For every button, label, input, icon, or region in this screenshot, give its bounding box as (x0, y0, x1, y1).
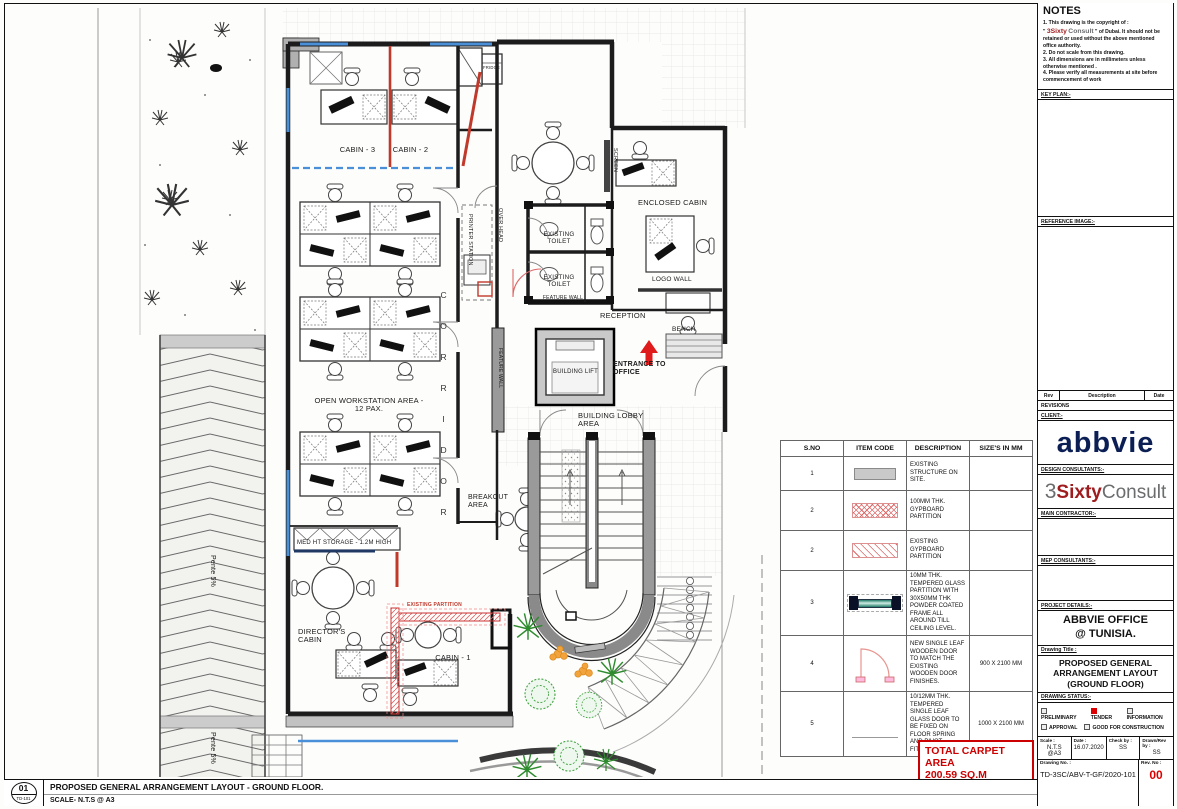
notes-body: 1. This drawing is the copyright of : " … (1038, 18, 1173, 87)
curved-walkway (470, 555, 762, 777)
main-contractor-section: MAIN CONTRACTOR:- (1038, 509, 1173, 556)
furniture (292, 54, 722, 706)
client-label: CLIENT:- (1038, 411, 1173, 421)
project-name-line2: @ TUNISIA. (1038, 628, 1173, 642)
drawing-title-section: Drawing Title : PROPOSED GENERAL ARRANGE… (1038, 646, 1173, 693)
checkbox-icon (1041, 724, 1047, 730)
legend-row: 3 10MM THK. TEMPERED GLASS PARTITION WIT… (781, 571, 1033, 636)
status-tender: TENDER (1091, 708, 1120, 721)
scale-field: Scale :N.T.S @A3 (1038, 737, 1072, 759)
project-details-label: PROJECT DETAILS:- (1038, 601, 1173, 611)
main-staircase (528, 432, 655, 661)
sheet-fields-row: Scale :N.T.S @A3 Date :16.07.2020 Check … (1038, 737, 1173, 760)
mep-consultants-section: MEP CONSULTANTS:- (1038, 556, 1173, 601)
sheet-scale: SCALE- N.T.S @ A3 (44, 795, 1037, 806)
sheet-footer-bar: 01 TD-101 PROPOSED GENERAL ARRANGEMENT L… (4, 779, 1037, 806)
project-details-section: PROJECT DETAILS:- ABBVIE OFFICE @ TUNISI… (1038, 601, 1173, 646)
existing-gypboard-hatch-swatch (852, 543, 898, 558)
project-name-line1: ABBVIE OFFICE (1038, 614, 1173, 628)
mep-consultants-label: MEP CONSULTANTS:- (1038, 556, 1173, 566)
checkbox-icon (1084, 724, 1090, 730)
drawing-title-label: Drawing Title : (1038, 646, 1173, 656)
client-section: CLIENT:- abbvie (1038, 411, 1173, 465)
revisions-header-row: Rev Description Date (1038, 391, 1173, 401)
status-preliminary: PRELIMINARY (1041, 708, 1084, 721)
drawing-title-line1: PROPOSED GENERAL (1038, 658, 1173, 669)
carpet-area-title: TOTAL CARPET AREA (925, 745, 1027, 769)
status-information: INFORMATION (1127, 708, 1170, 721)
legend-header-description: DESCRIPTION (907, 441, 970, 457)
gypboard-crosshatch-swatch (852, 503, 898, 518)
legend-header-size: SIZE'S IN MM (970, 441, 1033, 457)
checkbox-checked-icon (1091, 708, 1097, 714)
notes-brand-3sixty: 3Sixty (1047, 28, 1067, 35)
checkbox-icon (1041, 708, 1047, 714)
revision-number-field: Rev. No : 00 (1139, 760, 1173, 806)
detail-code: TD-101 (12, 795, 36, 803)
reference-image-section: REFERENCE IMAGE:- (1038, 217, 1173, 391)
glass-door-symbol (852, 737, 898, 738)
revisions-label: REVISIONS (1038, 401, 1173, 411)
notes-title: NOTES (1038, 3, 1173, 18)
sheet-title: PROPOSED GENERAL ARRANGEMENT LAYOUT - GR… (44, 780, 1037, 795)
check-by-field: Check by :SS (1107, 737, 1141, 759)
legend-header-row: S.NO ITEM CODE DESCRIPTION SIZE'S IN MM (781, 441, 1033, 457)
drawing-number-field: Drawing No. : TD-3SC/ABV-T-GF/2020-101 (1038, 760, 1139, 806)
checkbox-icon (1127, 708, 1133, 714)
main-contractor-label: MAIN CONTRACTOR:- (1038, 509, 1173, 519)
ramp (160, 335, 265, 777)
key-plan-label: KEY PLAN:- (1038, 90, 1173, 100)
drawing-title-line2: ARRANGEMENT LAYOUT (1038, 668, 1173, 679)
threesixty-consult-logo: 3SixtyConsult (1038, 475, 1173, 508)
drawn-by-field: Drawn/Rev by :SS (1140, 737, 1173, 759)
status-approval: APPROVAL (1041, 724, 1077, 731)
legend-header-sno: S.NO (781, 441, 844, 457)
key-plan-section: KEY PLAN:- (1038, 90, 1173, 217)
abbvie-logo: abbvie (1038, 421, 1173, 464)
legend-row: 2 EXISTING GYPBOARD PARTITION (781, 531, 1033, 571)
title-block: NOTES 1. This drawing is the copyright o… (1037, 3, 1173, 806)
status-good-for-construction: GOOD FOR CONSTRUCTION (1084, 724, 1163, 731)
legend-header-itemcode: ITEM CODE (844, 441, 907, 457)
drawing-status-section: DRAWING STATUS:- PRELIMINARY TENDER INFO… (1038, 693, 1173, 737)
entrance-arrow-icon (640, 340, 658, 365)
legend-row: 4 NEW SINGLE LEAF WOODEN DOOR TO MATCH T… (781, 636, 1033, 692)
legend-table: S.NO ITEM CODE DESCRIPTION SIZE'S IN MM … (780, 440, 1033, 757)
design-consultants-label: DESIGN CONSULTANTS:- (1038, 465, 1173, 475)
legend-row: 1 EXISTING STRUCTURE ON SITE. (781, 457, 1033, 491)
notes-brand-consult: Consult (1068, 28, 1093, 35)
revisions-section: Rev Description Date REVISIONS (1038, 391, 1173, 411)
date-field: Date :16.07.2020 (1072, 737, 1107, 759)
drawing-number-row: Drawing No. : TD-3SC/ABV-T-GF/2020-101 R… (1038, 760, 1173, 806)
notes-section: NOTES 1. This drawing is the copyright o… (1038, 3, 1173, 90)
reference-image-label: REFERENCE IMAGE:- (1038, 217, 1173, 227)
drawing-title-line3: (GROUND FLOOR) (1038, 679, 1173, 690)
glass-partition-symbol (849, 596, 901, 610)
drawing-status-label: DRAWING STATUS:- (1038, 693, 1173, 703)
design-consultants-section: DESIGN CONSULTANTS:- 3SixtyConsult (1038, 465, 1173, 509)
wooden-door-symbol (853, 642, 897, 684)
legend-row: 2 100MM THK. GYPBOARD PARTITION (781, 491, 1033, 531)
detail-number: 01 (12, 783, 36, 795)
existing-structure-swatch (854, 468, 896, 480)
drawing-sheet: FRIDGE CABIN - 3 CABIN - 2 SCREEN OVER H… (0, 0, 1177, 809)
detail-reference-bubble: 01 TD-101 (4, 780, 44, 806)
